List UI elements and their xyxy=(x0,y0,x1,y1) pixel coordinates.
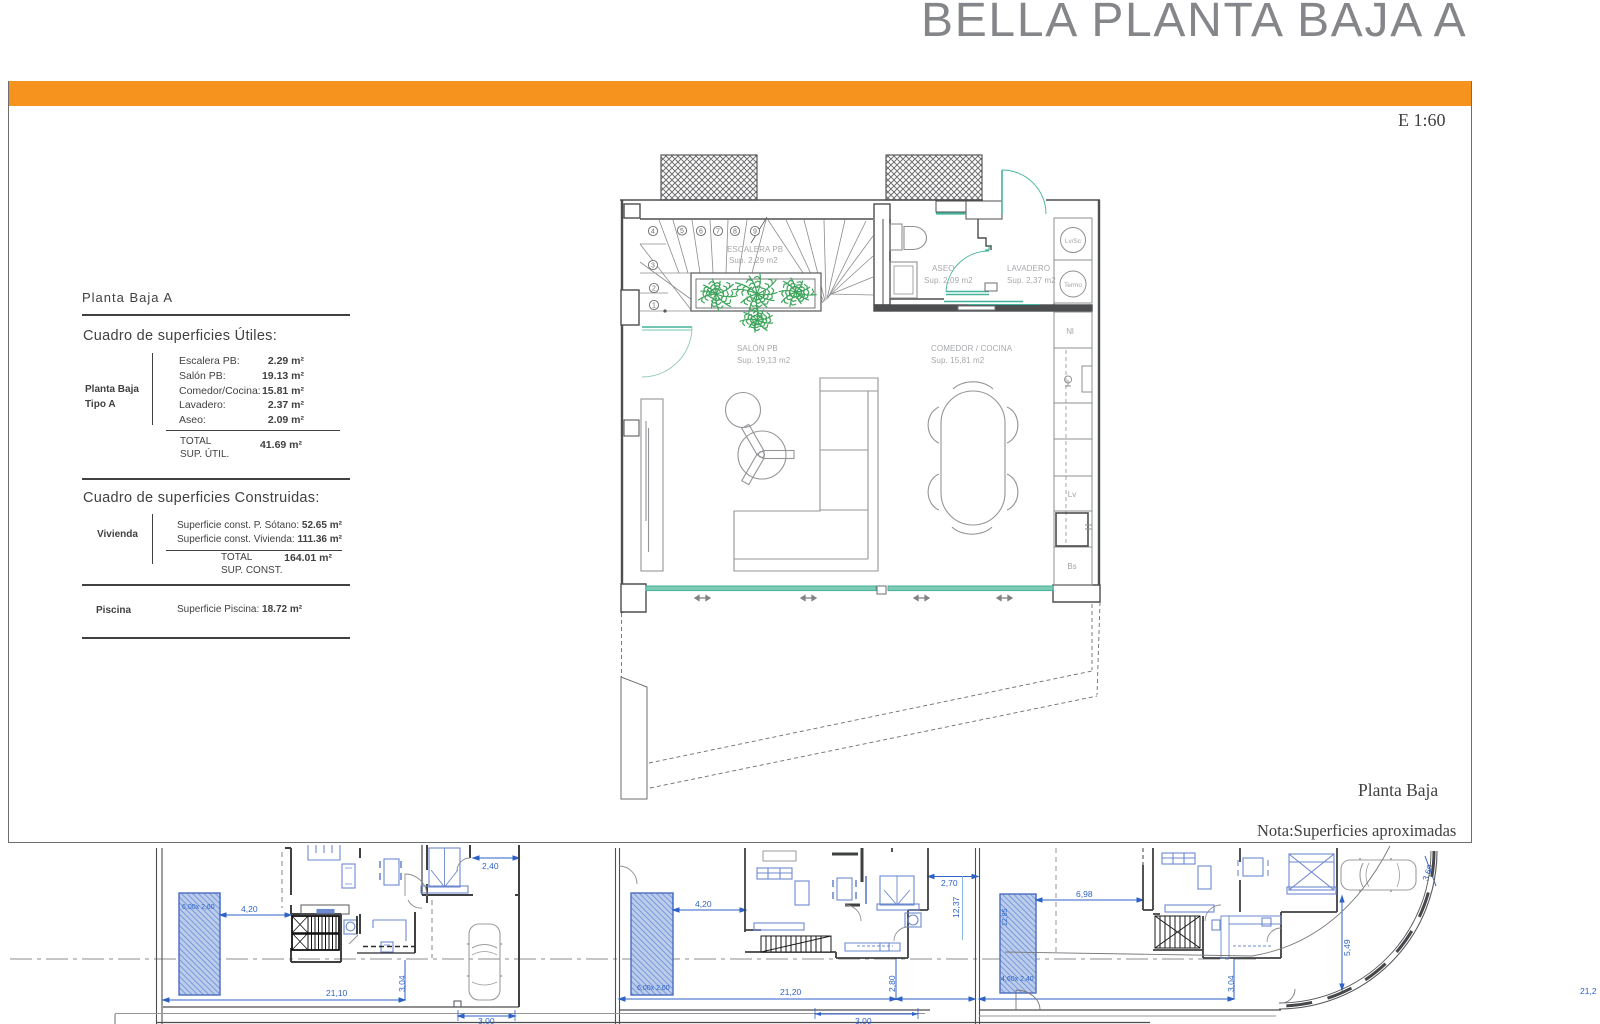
svg-text:12,37: 12,37 xyxy=(951,896,961,918)
svg-text:2,70: 2,70 xyxy=(941,878,958,888)
svg-text:21,2: 21,2 xyxy=(1580,986,1597,996)
svg-text:2,80: 2,80 xyxy=(887,975,897,992)
svg-text:Sup. 2,37 m2: Sup. 2,37 m2 xyxy=(1007,276,1056,285)
svg-text:COMEDOR / COCINA: COMEDOR / COCINA xyxy=(931,344,1013,353)
svg-text:3,04: 3,04 xyxy=(397,975,407,992)
svg-text:Sup. 2,09 m2: Sup. 2,09 m2 xyxy=(924,276,973,285)
svg-text:Sup. 19,13 m2: Sup. 19,13 m2 xyxy=(737,356,791,365)
svg-text:SALÓN PB: SALÓN PB xyxy=(737,344,778,353)
svg-text:Bs: Bs xyxy=(1067,562,1076,571)
svg-text:ESCALERA PB: ESCALERA PB xyxy=(727,245,783,254)
svg-text:Lv: Lv xyxy=(1068,490,1076,499)
svg-text:Sup. 2.29 m2: Sup. 2.29 m2 xyxy=(729,256,778,265)
svg-text:2: 2 xyxy=(652,286,656,293)
svg-text:5,49: 5,49 xyxy=(1342,939,1352,956)
svg-text:21,10: 21,10 xyxy=(326,988,348,998)
svg-text:2,40: 2,40 xyxy=(482,861,499,871)
svg-text:ASEO: ASEO xyxy=(932,264,955,273)
svg-text:3: 3 xyxy=(651,263,655,270)
svg-text:Nl: Nl xyxy=(1066,327,1074,336)
svg-text:3,00: 3,00 xyxy=(478,1016,495,1024)
svg-text:1: 1 xyxy=(652,303,656,310)
svg-text:4,20: 4,20 xyxy=(695,899,712,909)
svg-text:Termo: Termo xyxy=(1064,282,1082,289)
svg-text:Sup. 15,81 m2: Sup. 15,81 m2 xyxy=(931,356,985,365)
svg-text:6: 6 xyxy=(699,229,703,236)
svg-text:5: 5 xyxy=(680,228,684,235)
svg-text:Lv/Sc: Lv/Sc xyxy=(1065,238,1082,245)
svg-text:4: 4 xyxy=(651,229,655,236)
svg-text:6,98: 6,98 xyxy=(1076,889,1093,899)
svg-text:3,04: 3,04 xyxy=(1226,975,1236,992)
svg-text:LAVADERO: LAVADERO xyxy=(1007,264,1050,273)
svg-text:6,00x 2,60: 6,00x 2,60 xyxy=(637,985,670,992)
svg-text:4,20: 4,20 xyxy=(241,904,258,914)
svg-text:21,20: 21,20 xyxy=(780,987,802,997)
svg-text:7: 7 xyxy=(716,229,720,236)
svg-text:3,00: 3,00 xyxy=(855,1016,872,1024)
svg-text:6,00x 2,60: 6,00x 2,60 xyxy=(182,904,215,911)
svg-text:12,85: 12,85 xyxy=(1002,908,1009,926)
svg-text:8: 8 xyxy=(733,229,737,236)
svg-text:9: 9 xyxy=(753,229,757,236)
svg-text:4,60x 2,40: 4,60x 2,40 xyxy=(1001,976,1034,983)
